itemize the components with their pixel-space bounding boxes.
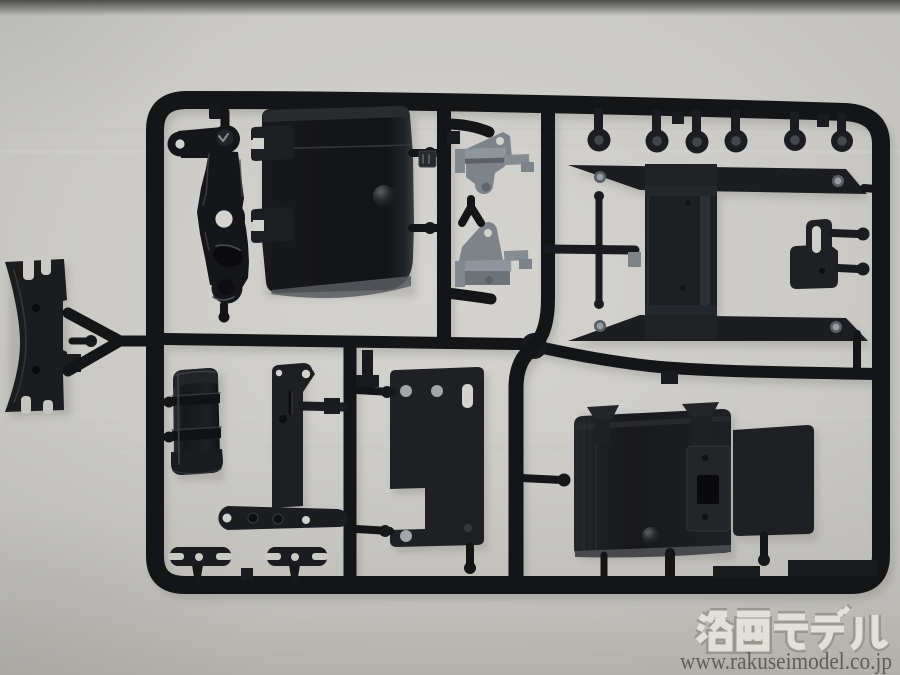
svg-text:www.rakuseimodel.co.jp: www.rakuseimodel.co.jp	[680, 649, 892, 675]
